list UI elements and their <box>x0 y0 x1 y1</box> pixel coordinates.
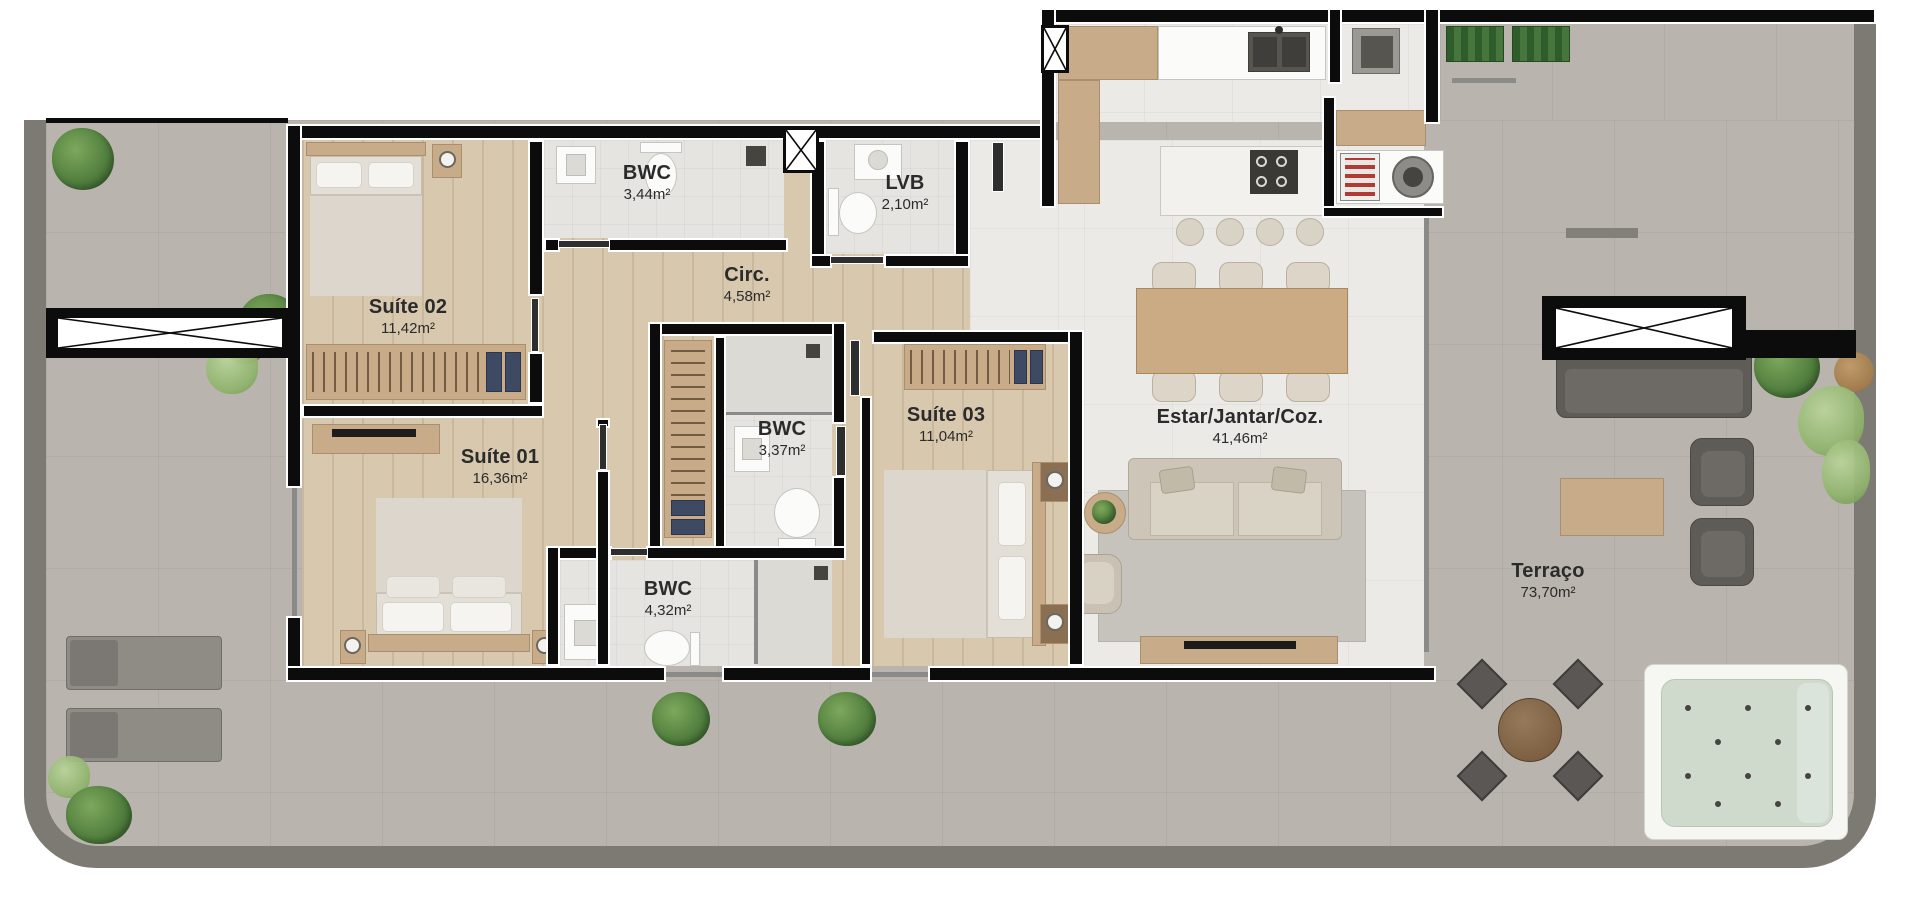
room-area: 11,42m² <box>369 320 447 338</box>
burner <box>1276 156 1287 167</box>
door-suite02 <box>531 298 539 352</box>
bwc3-toilet-tank <box>690 632 700 666</box>
wall-bwc2-right-lower <box>832 476 846 552</box>
suite02-lamp <box>439 151 456 168</box>
bwc3-toilet <box>644 630 690 666</box>
suite02-duvet <box>310 194 422 296</box>
room-label-suite01: Suíte 01 16,36m² <box>461 446 539 487</box>
patio-table <box>1498 698 1562 762</box>
fridge-bottles <box>1345 158 1375 196</box>
room-name: Terraço <box>1511 560 1584 584</box>
outdoor-sofa-seat <box>1565 369 1743 413</box>
dining-chair <box>1286 370 1330 402</box>
kitchen-pantry-column <box>1058 80 1100 204</box>
plant <box>652 692 710 746</box>
door-bwc3 <box>610 548 648 556</box>
suite01-headboard <box>368 634 530 652</box>
shaft-x-kitchen <box>1044 28 1066 70</box>
suite02-pillow <box>316 162 362 188</box>
laundry-sink <box>1352 28 1400 74</box>
room-label-suite03: Suíte 03 11,04m² <box>907 404 985 445</box>
bwc1-basin <box>566 154 586 176</box>
room-name: Estar/Jantar/Coz. <box>1157 406 1324 430</box>
terrace-edge-line <box>46 118 288 123</box>
wall-suite01-right-b <box>596 470 610 666</box>
laundry-basin <box>1361 36 1393 68</box>
wall-suite03-left <box>860 396 872 666</box>
bar-stool <box>1216 218 1244 246</box>
door-suite01 <box>599 424 607 470</box>
wall-closet-bwc2-divider <box>714 336 726 552</box>
island-cooktop <box>1250 150 1298 194</box>
suite01-tv <box>332 429 416 437</box>
suite01-pillow <box>386 576 440 598</box>
suite03-lamp <box>1046 471 1064 489</box>
towel-rail <box>1452 78 1516 83</box>
wall-suite03-right <box>1068 330 1084 666</box>
room-name: Circ. <box>724 264 771 288</box>
suite03-storage-box <box>1014 350 1027 384</box>
suite02-wardrobe-hangers <box>312 352 480 392</box>
room-label-suite02: Suíte 02 11,42m² <box>369 296 447 337</box>
sink-basin <box>1282 37 1306 67</box>
room-area: 4,32m² <box>644 602 692 620</box>
closet-hangers <box>671 346 705 496</box>
plant <box>66 786 132 844</box>
wall-lvb-bottom-a <box>810 254 832 268</box>
sink-basin <box>1253 37 1277 67</box>
island-counter <box>1160 146 1336 216</box>
wall-bbq-horizontal <box>1322 206 1444 218</box>
room-label-terraco: Terraço 73,70m² <box>1511 560 1584 601</box>
room-label-bwc2: BWC 3,37m² <box>758 418 806 459</box>
outdoor-armchair <box>1690 518 1754 586</box>
room-label-bwc1: BWC 3,44m² <box>623 162 671 203</box>
suite03-duvet <box>884 470 988 638</box>
lvb-basin <box>868 150 888 170</box>
wall-utility-divider <box>1328 8 1342 84</box>
suite03-pillow <box>998 556 1026 620</box>
suite03-pillow <box>998 482 1026 546</box>
closet-storage-box <box>671 519 705 535</box>
dining-chair <box>1219 370 1263 402</box>
sliding-glass-terrace-1 <box>666 672 722 677</box>
bwc2-shower-glass <box>726 412 832 415</box>
suite02-storage-box <box>486 352 502 392</box>
bwc3-shower-glass <box>754 560 758 664</box>
planter-box <box>1512 26 1570 62</box>
bwc1-toilet-tank <box>640 142 682 153</box>
dining-chair <box>1152 370 1196 402</box>
room-area: 11,04m² <box>907 428 985 446</box>
tv <box>1184 641 1296 649</box>
room-label-bwc3: BWC 4,32m² <box>644 578 692 619</box>
accent-chair-seat <box>1080 562 1114 604</box>
plant <box>52 128 114 190</box>
room-name: BWC <box>623 162 671 186</box>
suite03-lamp <box>1046 613 1064 631</box>
bar-stool <box>1296 218 1324 246</box>
room-area: 2,10m² <box>882 196 929 214</box>
planter-box <box>1446 26 1504 62</box>
door-bwc2 <box>836 426 846 476</box>
plant <box>818 692 876 746</box>
wall-lvb-right <box>954 140 970 268</box>
dining-table <box>1136 288 1348 374</box>
suite02-headboard <box>306 142 426 156</box>
door-bwc1 <box>558 240 610 248</box>
room-name: Suíte 01 <box>461 446 539 470</box>
room-area: 3,37m² <box>758 442 806 460</box>
kitchen-faucet <box>1275 26 1283 34</box>
mini-fridge <box>1340 153 1380 201</box>
wall-bwc1-bottom-b <box>608 238 788 252</box>
terrace-bench <box>1566 228 1638 238</box>
bwc1-shower-head <box>746 146 766 166</box>
suite03-wardrobe-hangers <box>910 350 1010 384</box>
wall-suite03-top <box>872 330 1084 344</box>
wall-bbq-vertical <box>1322 96 1336 218</box>
bbq-wood-counter <box>1336 110 1426 146</box>
suite01-pillow <box>452 576 506 598</box>
room-area: 3,44m² <box>623 186 671 204</box>
jacuzzi-seat <box>1797 683 1829 823</box>
door-lvb <box>830 256 884 264</box>
wall-closet-top <box>648 322 846 336</box>
wall-kitchen-right <box>1424 8 1440 124</box>
room-area: 4,58m² <box>724 288 771 306</box>
sofa-pillow <box>1271 466 1308 494</box>
bwc3-basin <box>574 620 598 646</box>
jacuzzi-jets <box>1685 705 1691 711</box>
sun-lounger-head <box>70 640 118 686</box>
closet-storage-box <box>671 500 705 516</box>
outdoor-armchair-seat <box>1701 451 1745 497</box>
kitchen-cabinet-l <box>1058 26 1158 80</box>
sliding-glass-terrace-2 <box>872 672 928 677</box>
grill-center <box>1403 167 1423 187</box>
bwc2-toilet <box>774 488 820 538</box>
room-name: Suíte 02 <box>369 296 447 320</box>
bar-stool <box>1176 218 1204 246</box>
wall-top-main <box>286 124 1046 140</box>
wall-bwc2-right-upper <box>832 322 846 424</box>
bwc3-shower-head <box>814 566 828 580</box>
suite01-lamp <box>344 637 361 654</box>
wall-bottom-suite03 <box>722 666 872 682</box>
burner <box>1256 176 1267 187</box>
wall-kitchen-top <box>1040 8 1876 24</box>
hanging-plant <box>1822 440 1870 504</box>
suite02-pillow <box>368 162 414 188</box>
floor-plan: Suíte 02 11,42m² BWC 3,44m² LVB 2,10m² C… <box>0 0 1920 908</box>
room-name: BWC <box>644 578 692 602</box>
burner <box>1276 176 1287 187</box>
sun-lounger-head <box>70 712 118 758</box>
window-x-west <box>58 318 282 348</box>
suite03-storage-box <box>1030 350 1043 384</box>
room-label-lvb: LVB 2,10m² <box>882 172 929 213</box>
wall-bwc3-top-b <box>646 546 846 560</box>
wall-suite02-right-lower <box>528 352 544 404</box>
door-entry <box>992 142 1004 192</box>
wall-lvb-bottom-b <box>884 254 970 268</box>
wall-suite02-suite01-divider <box>302 404 544 418</box>
suite01-pillow <box>382 602 444 632</box>
sliding-glass-living-east <box>1424 218 1429 652</box>
wall-bwc3-left <box>546 546 560 666</box>
wall-bottom-living <box>928 666 1436 682</box>
lvb-toilet-tank <box>828 188 839 236</box>
window-x-east <box>1556 308 1732 348</box>
room-name: Suíte 03 <box>907 404 985 428</box>
room-area: 73,70m² <box>1511 584 1584 602</box>
bar-stool <box>1256 218 1284 246</box>
wall-bottom-west <box>286 666 666 682</box>
grill <box>1392 156 1434 198</box>
shaft-x-hall <box>786 130 816 170</box>
suite02-storage-box <box>505 352 521 392</box>
suite01-pillow <box>450 602 512 632</box>
side-table-plant <box>1092 500 1116 524</box>
room-area: 41,46m² <box>1157 430 1324 448</box>
room-area: 16,36m² <box>461 470 539 488</box>
burner <box>1256 156 1267 167</box>
room-name: BWC <box>758 418 806 442</box>
outdoor-armchair <box>1690 438 1754 506</box>
bwc2-shower-head <box>806 344 820 358</box>
room-label-estar: Estar/Jantar/Coz. 41,46m² <box>1157 406 1324 447</box>
lvb-toilet <box>839 192 877 234</box>
outdoor-armchair-seat <box>1701 531 1745 577</box>
wall-closet-left <box>648 322 662 552</box>
sofa-pillow <box>1158 466 1195 494</box>
room-label-circ: Circ. 4,58m² <box>724 264 771 305</box>
sliding-glass-suite01 <box>292 488 297 616</box>
jacuzzi <box>1644 664 1848 840</box>
room-name: LVB <box>882 172 929 196</box>
wall-apartment-left-upper <box>286 124 302 488</box>
kitchen-sink <box>1248 32 1310 72</box>
coffee-table <box>1560 478 1664 536</box>
wall-east-window-extension <box>1744 330 1856 358</box>
door-suite03 <box>850 340 860 396</box>
wall-suite02-right-upper <box>528 140 544 296</box>
